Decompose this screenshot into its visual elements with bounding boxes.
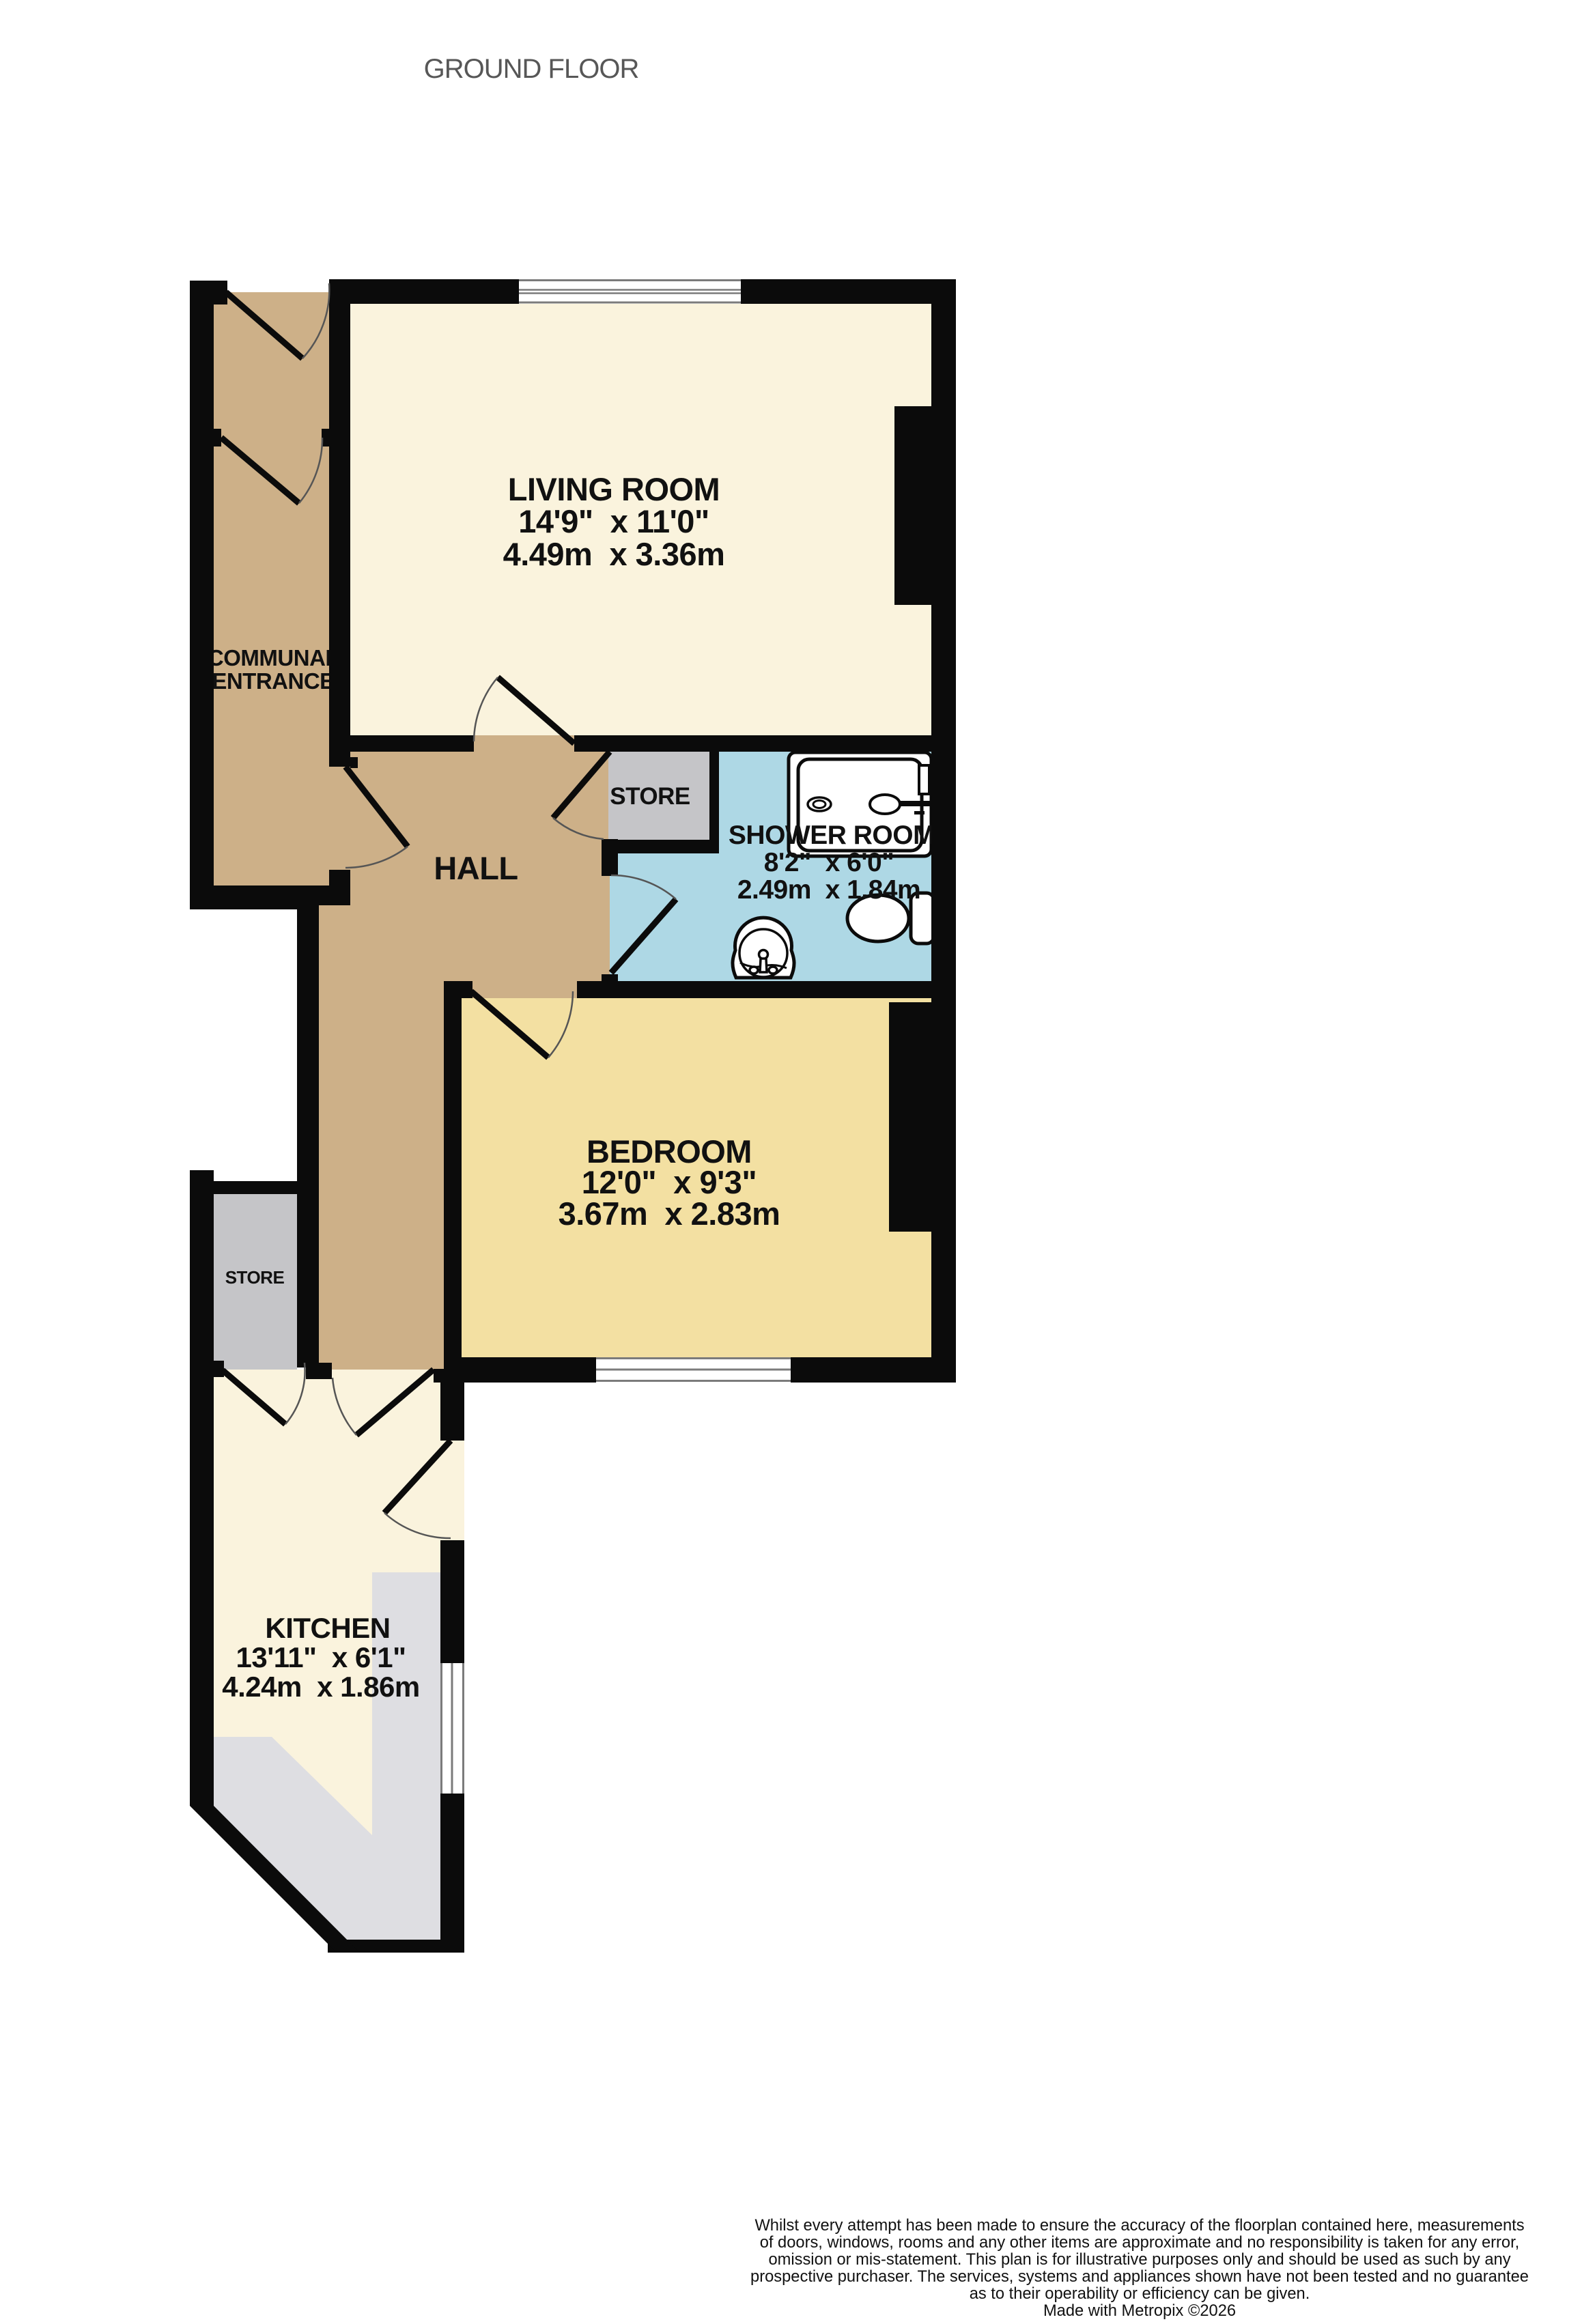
svg-text:LIVING ROOM: LIVING ROOM — [508, 471, 720, 507]
svg-text:4.24m x 1.86m: 4.24m x 1.86m — [222, 1671, 420, 1703]
svg-text:14'9" x 11'0": 14'9" x 11'0" — [518, 503, 709, 539]
svg-text:8'2" x 6'0": 8'2" x 6'0" — [764, 848, 894, 877]
svg-text:3.67m x 2.83m: 3.67m x 2.83m — [559, 1195, 780, 1232]
svg-text:STORE: STORE — [225, 1267, 285, 1288]
svg-text:KITCHEN: KITCHEN — [265, 1612, 390, 1644]
svg-text:COMMUNAL: COMMUNAL — [208, 645, 339, 670]
svg-text:omission or mis-statement. Thi: omission or mis-statement. This plan is … — [768, 2251, 1510, 2269]
svg-text:Whilst every attempt has been: Whilst every attempt has been made to en… — [754, 2217, 1524, 2235]
svg-text:HALL: HALL — [434, 850, 518, 886]
svg-text:SHOWER ROOM: SHOWER ROOM — [729, 821, 935, 850]
svg-text:GROUND FLOOR: GROUND FLOOR — [424, 54, 639, 84]
svg-text:as to their operability or eff: as to their operability or efficiency ca… — [970, 2285, 1310, 2303]
svg-text:2.49m x 1.84m: 2.49m x 1.84m — [737, 875, 920, 905]
svg-text:4.49m x 3.36m: 4.49m x 3.36m — [503, 536, 725, 572]
svg-text:STORE: STORE — [610, 783, 690, 810]
svg-text:of doors, windows, rooms and a: of doors, windows, rooms and any other i… — [760, 2234, 1520, 2252]
svg-text:prospective purchaser. The ser: prospective purchaser. The services, sys… — [750, 2268, 1529, 2286]
svg-text:Made with Metropix ©2026: Made with Metropix ©2026 — [1043, 2302, 1236, 2320]
svg-text:ENTRANCE: ENTRANCE — [212, 668, 334, 694]
svg-text:13'11" x 6'1": 13'11" x 6'1" — [236, 1641, 406, 1673]
